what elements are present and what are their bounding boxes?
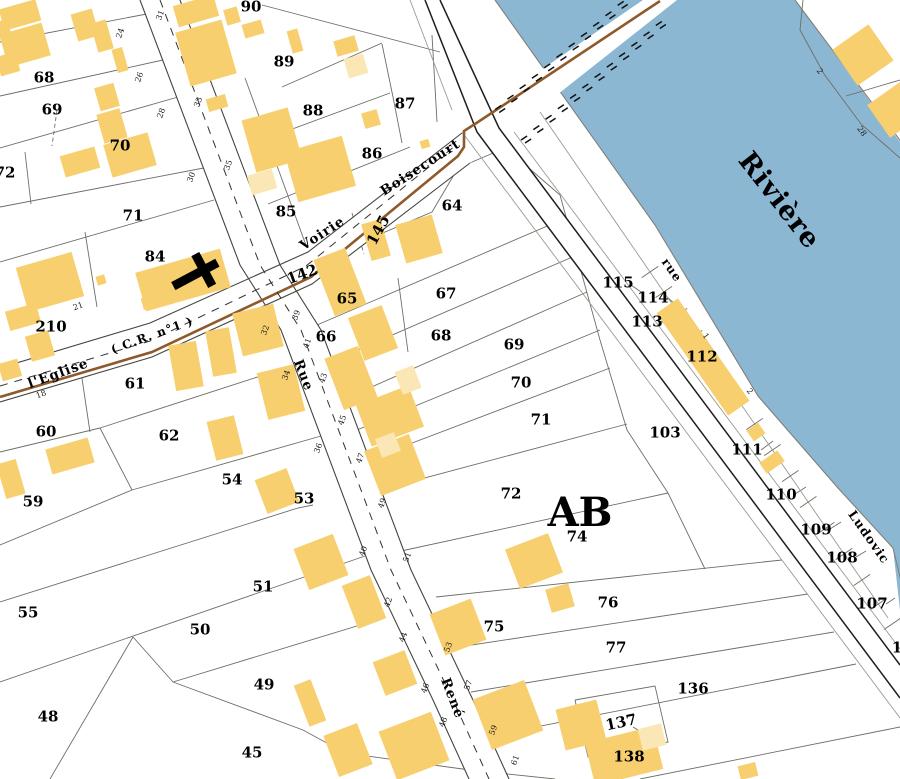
parcel-label: 67 (436, 284, 457, 302)
footbridge-hatch-mark (546, 115, 552, 119)
section-label: AB (547, 489, 613, 536)
building (759, 450, 784, 473)
parcel-label: 61 (125, 374, 146, 392)
footbridge-hatch-mark (550, 118, 556, 122)
parcel-label: 85 (276, 202, 297, 220)
parcel-label: 88 (303, 101, 324, 119)
house-number-label: 28 (155, 107, 167, 120)
footbridge-hatch-mark (521, 136, 527, 140)
cadastral-map-canvas: 9068697072718988878685842106160625964656… (0, 0, 900, 779)
parcel-label: 50 (190, 620, 211, 638)
building (505, 533, 563, 589)
building (45, 437, 94, 474)
footbridge-hatch-mark (558, 105, 564, 109)
house-number-label: 24 (114, 27, 126, 40)
parcel-label: 60 (36, 422, 57, 440)
parcel-label: 53 (294, 489, 315, 507)
parcel-boundary (85, 232, 97, 307)
building (111, 47, 128, 73)
house-number-label: 57 (462, 679, 474, 692)
parcel-boundary (436, 560, 782, 597)
parcel-label: 86 (362, 144, 383, 162)
parcel-boundary (100, 428, 132, 490)
house-number-label: 18 (35, 388, 48, 400)
parcel-boundary (490, 664, 856, 736)
building (333, 35, 359, 56)
footbridge-hatch-mark (533, 126, 539, 130)
house-number-label: 21 (72, 300, 85, 312)
parcel-label: 113 (631, 312, 662, 330)
parcel-boundary (0, 490, 132, 545)
house-number-label: 30 (185, 171, 197, 184)
parcel-boundary (432, 35, 437, 122)
building (60, 146, 101, 177)
footbridge-hatch-mark (525, 139, 531, 143)
parcel-label: 68 (431, 326, 452, 344)
parcel-label: 48 (38, 707, 59, 725)
parcel-label: 103 (649, 423, 680, 441)
building (95, 274, 106, 285)
parcel-label: 137 (604, 710, 638, 734)
strip-parcel-tick (782, 470, 798, 481)
building (294, 679, 327, 727)
parcel-label: 51 (253, 577, 274, 595)
parcel-label: 65 (337, 289, 358, 307)
house-number-label: 2 (745, 387, 755, 396)
parcel-boundary (0, 97, 178, 148)
parcel-boundary (452, 594, 808, 648)
parcel-label: 76 (598, 593, 619, 611)
building (168, 341, 204, 391)
parcel-label: 72 (501, 484, 522, 502)
parcel-label: 62 (159, 426, 180, 444)
building-light (344, 54, 369, 79)
footbridge-hatch-mark (562, 108, 568, 112)
parcel-label: 107 (856, 594, 887, 612)
parcel-label: 115 (602, 273, 633, 291)
parcel-label: 64 (442, 196, 463, 214)
building (241, 20, 264, 39)
building (545, 583, 575, 613)
parcel-label: 84 (145, 247, 166, 265)
parcel-label: 77 (606, 638, 627, 656)
cadastral-map: 9068697072718988878685842106160625964656… (0, 0, 900, 779)
parcel-label: 75 (484, 617, 505, 635)
parcel-boundary (0, 200, 214, 262)
building (395, 215, 443, 264)
parcel-label: 69 (504, 335, 525, 353)
building (323, 723, 372, 777)
building (287, 28, 304, 53)
building (373, 650, 418, 696)
footbridge-hatch-mark (537, 129, 543, 133)
parcel-label: 72 (0, 163, 15, 181)
building (90, 19, 114, 52)
building (361, 109, 381, 129)
parcel-label: 109 (800, 520, 831, 538)
parcel-label: 54 (222, 470, 243, 488)
building (294, 534, 349, 590)
building (207, 415, 244, 461)
building (747, 423, 766, 442)
parcel-label: 55 (18, 603, 39, 621)
parcel-label: 138 (613, 747, 644, 765)
house-number-label: 61 (509, 754, 521, 767)
parcel-label: 87 (395, 94, 416, 112)
parcel-label: 66 (316, 327, 337, 345)
parcel-boundary (133, 637, 173, 682)
parcel-label: 59 (23, 492, 44, 510)
parcel-label: 68 (34, 68, 55, 86)
building (223, 6, 241, 25)
parcel-label: 71 (123, 206, 144, 224)
parcel-label: 70 (110, 136, 131, 154)
strip-parcel-tick (800, 496, 816, 507)
parcel-label: 49 (254, 675, 275, 693)
parcel-label: 45 (242, 743, 263, 761)
house-number-label: 26 (133, 71, 145, 84)
road-boisecourt-surface (0, 0, 677, 402)
strip-parcel-tick (884, 618, 900, 629)
parcel-label: 114 (637, 288, 668, 306)
parcel-label: 90 (241, 0, 262, 15)
parcel-boundary (25, 152, 31, 204)
parcel-label: 89 (274, 52, 295, 70)
parcel-label: 210 (35, 317, 66, 335)
parcel-label: 110 (765, 485, 796, 503)
parcel-label: 108 (826, 548, 857, 566)
building-light (247, 169, 278, 195)
parcel-label: 136 (677, 679, 708, 697)
house-number-label: 36 (312, 442, 324, 455)
parcel-boundary (640, 727, 900, 779)
house-number-label: 51 (401, 551, 413, 564)
parcel-label: 111 (731, 440, 762, 458)
strip-parcel-tick (642, 266, 658, 277)
parcel-label: 69 (42, 100, 63, 118)
building (738, 762, 759, 779)
building (94, 83, 120, 112)
parcel-boundary (471, 632, 834, 692)
building (420, 139, 431, 149)
parcel-label: 71 (531, 410, 552, 428)
building (205, 327, 237, 376)
parcel-boundary (50, 637, 133, 779)
parcel-label: 112 (686, 347, 717, 365)
strip-parcel-tick (854, 574, 870, 585)
parcel-label: 1 (892, 638, 900, 656)
parcel-label: 70 (511, 373, 532, 391)
